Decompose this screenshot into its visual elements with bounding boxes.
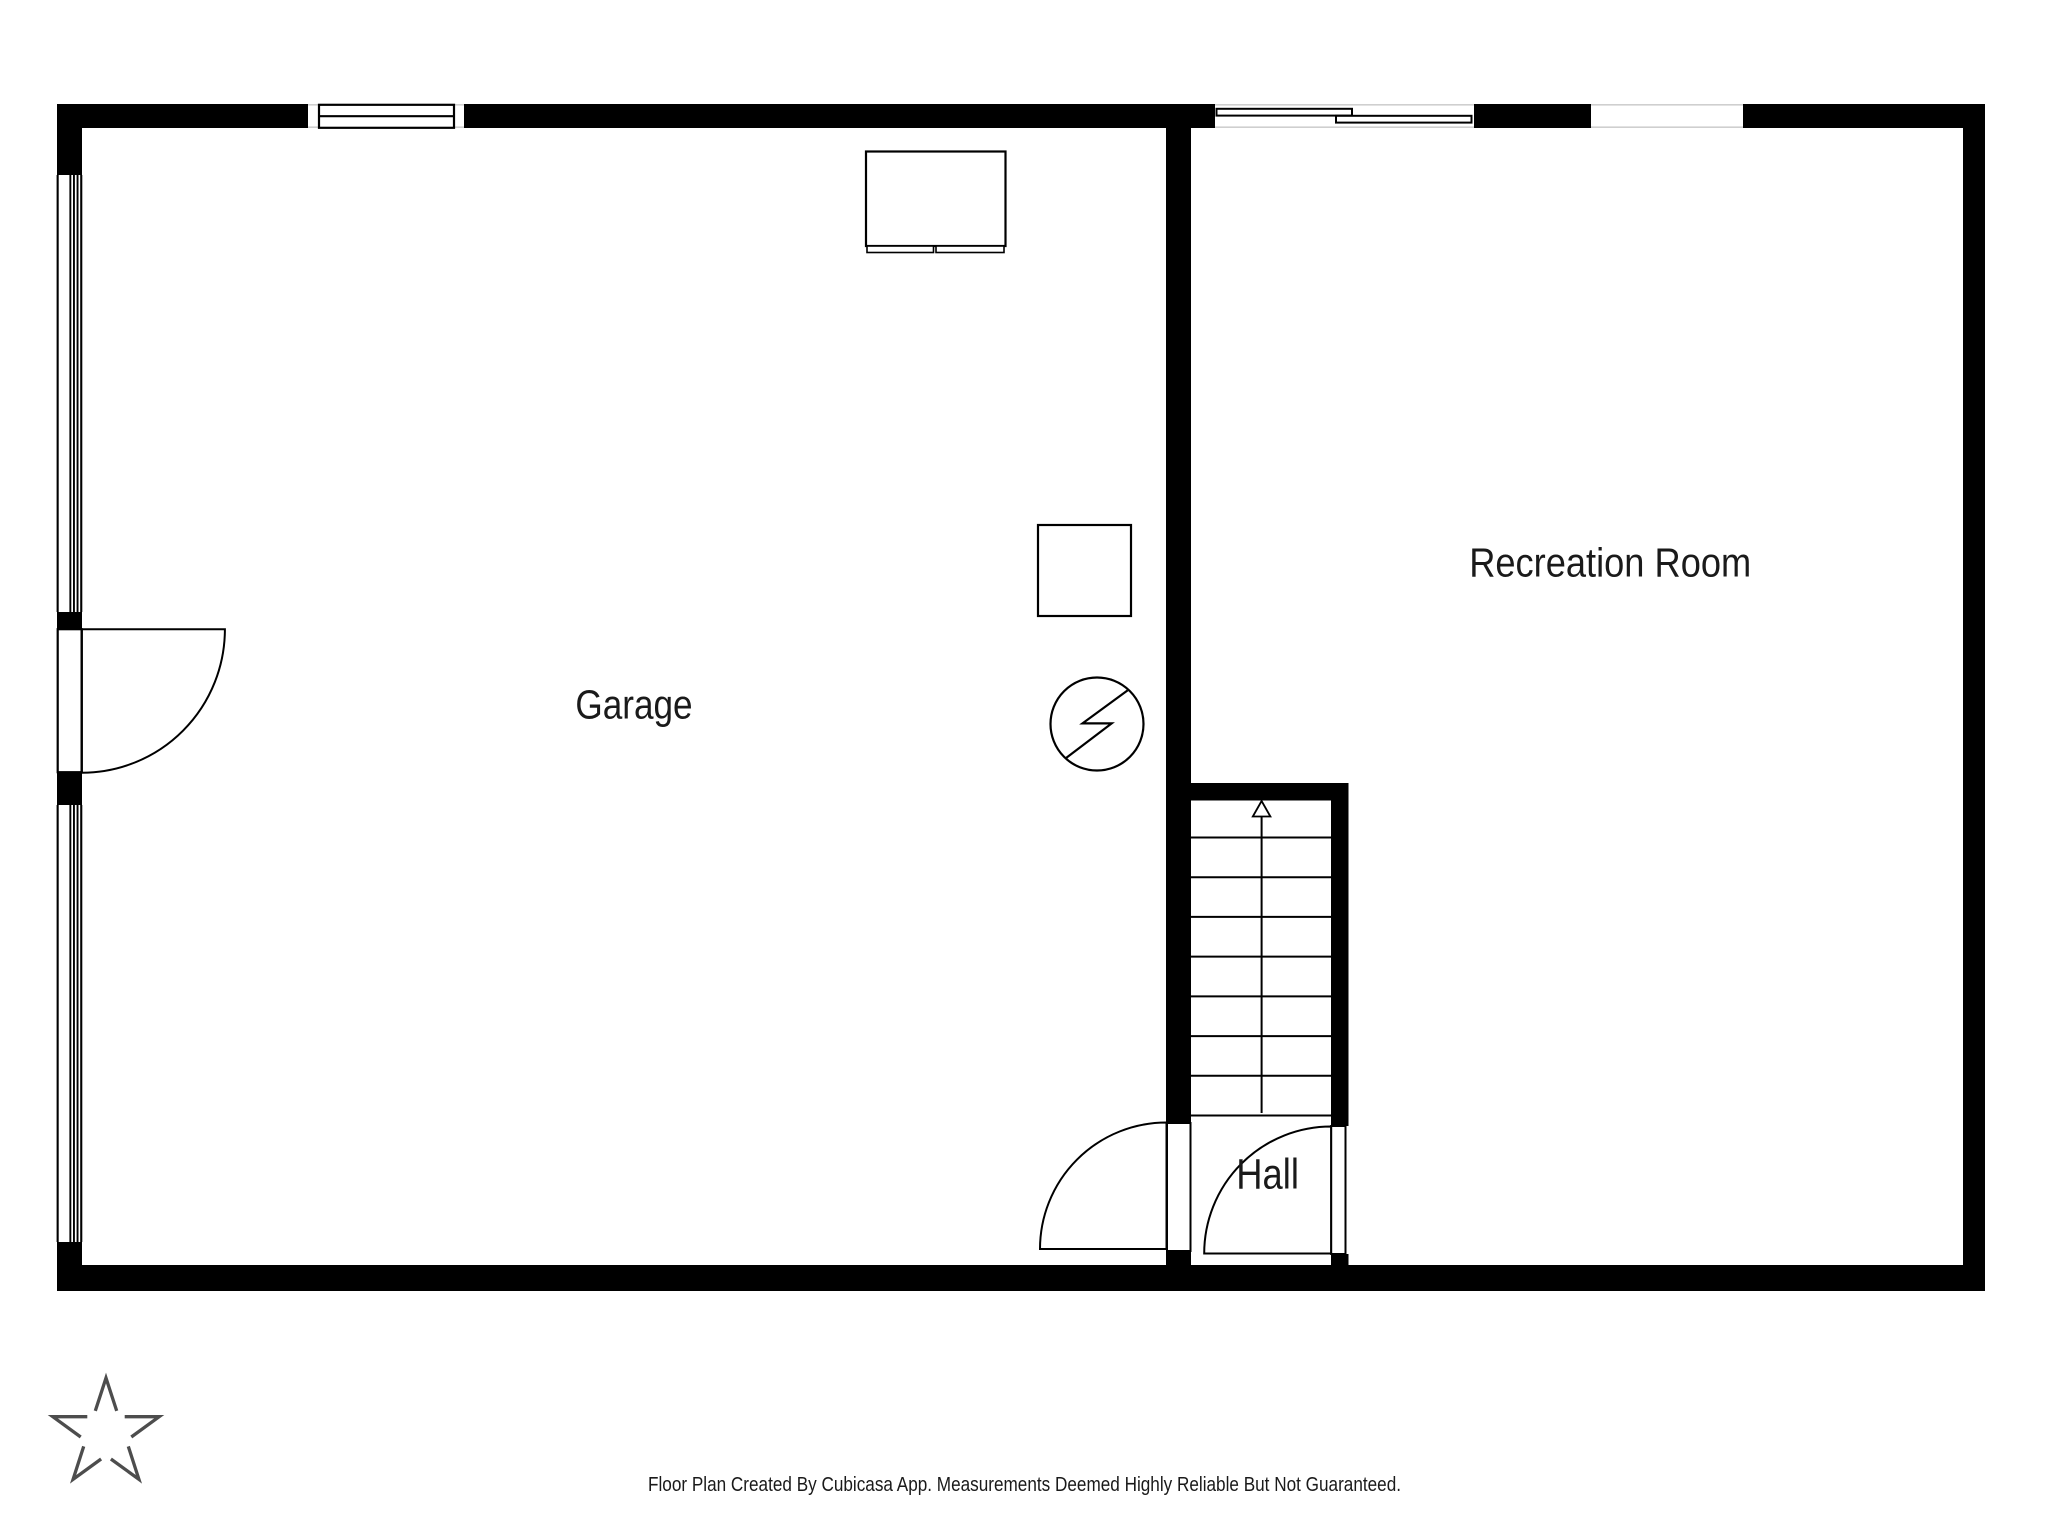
svg-text:Floor Plan Created By Cubicasa: Floor Plan Created By Cubicasa App. Meas… xyxy=(648,1473,1401,1496)
svg-text:Garage: Garage xyxy=(575,682,692,728)
svg-text:Hall: Hall xyxy=(1236,1151,1299,1198)
svg-text:Recreation Room: Recreation Room xyxy=(1469,539,1751,585)
